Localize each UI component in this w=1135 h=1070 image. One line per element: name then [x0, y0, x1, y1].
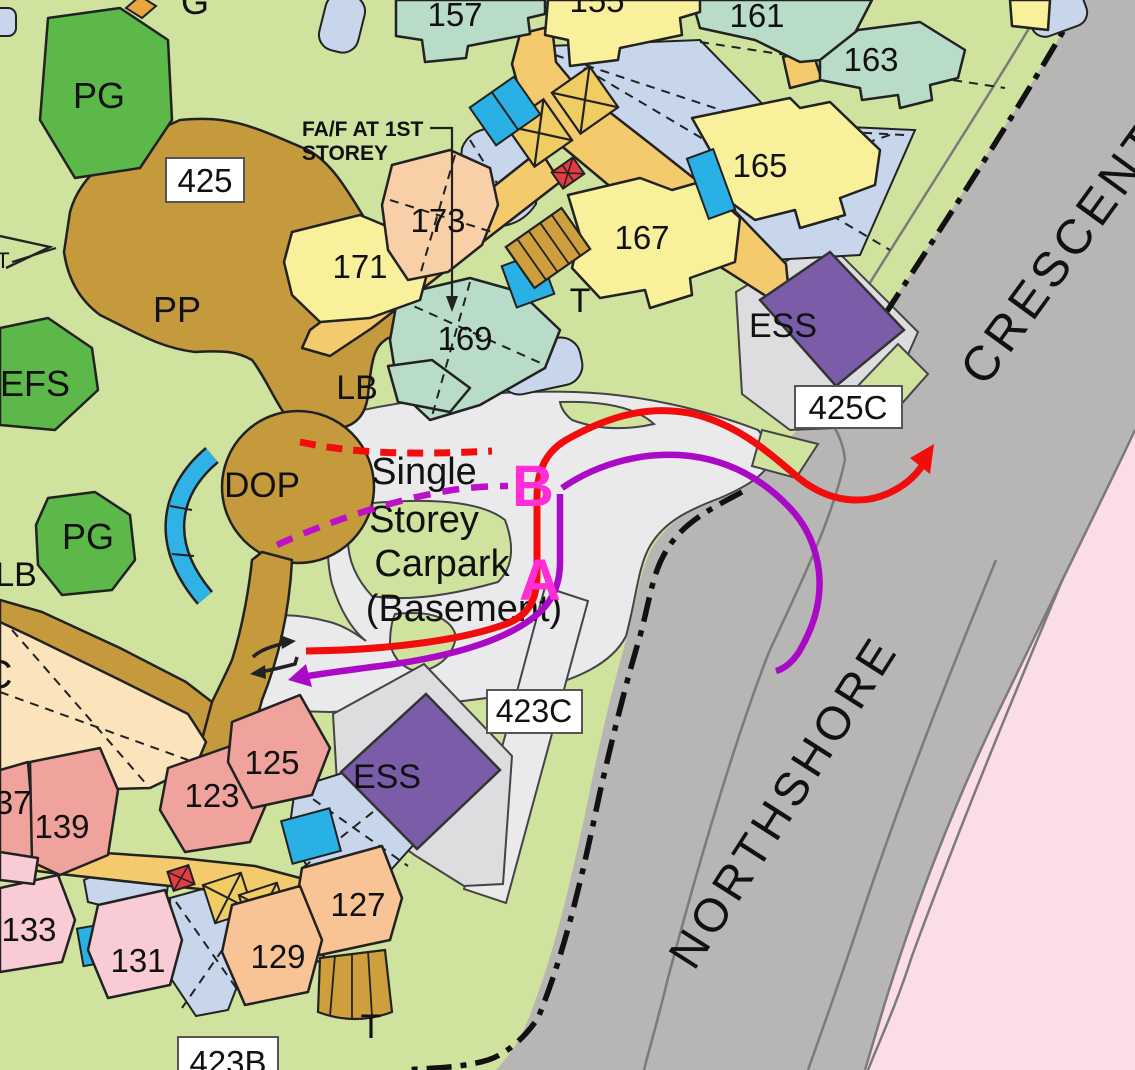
g-top-label: G — [181, 0, 209, 22]
marker-a: A — [519, 548, 561, 613]
pg-top-label: PG — [73, 75, 125, 116]
carpark-text-2: Storey — [369, 499, 479, 541]
carpark-text-1: Single — [371, 451, 477, 493]
annotation-line2: STOREY — [302, 142, 388, 165]
lb-left-label: LB — [0, 556, 37, 594]
block-169-label: 169 — [437, 320, 492, 357]
ess-bottom-label: ESS — [353, 758, 421, 796]
t-left-label: T — [0, 248, 10, 273]
efs-label: EFS — [0, 363, 70, 404]
carpark-text-3: Carpark — [374, 543, 510, 585]
t-bottom-label: T — [361, 1008, 382, 1046]
block-173-label: 173 — [410, 202, 465, 239]
marker-b: B — [512, 454, 554, 519]
block-125-label: 125 — [244, 744, 299, 781]
block-167-label: 167 — [614, 219, 669, 256]
block-155-label: 155 — [569, 0, 624, 19]
block-pink-small — [0, 852, 38, 884]
voiddeck-left-edge — [0, 8, 16, 36]
dop-label: DOP — [224, 466, 300, 505]
block-131-label: 131 — [110, 942, 165, 979]
block-137-label: 137 — [0, 784, 32, 821]
site-map: PG G EFS PP DOP PG LB LB ESS ESS T T T C… — [0, 0, 1135, 1070]
pp-label: PP — [153, 289, 201, 330]
block-129-label: 129 — [250, 938, 305, 975]
label-423c: 423C — [496, 693, 573, 729]
annotation-line1: FA/F AT 1ST — [302, 118, 424, 141]
block-133-label: 133 — [1, 911, 56, 948]
block-163-label: 163 — [843, 41, 898, 78]
pg-mid-label: PG — [62, 516, 114, 557]
block-123-label: 123 — [184, 777, 239, 814]
c-left-label: C — [0, 653, 12, 697]
block-139-label: 139 — [34, 808, 89, 845]
block-topright-yellow — [1010, 0, 1050, 30]
lb-top-label: LB — [336, 369, 378, 407]
label-423b: 423B — [189, 1044, 266, 1070]
block-161-label: 161 — [729, 0, 784, 34]
t-top-label: T — [570, 282, 591, 320]
ess-top-label: ESS — [749, 307, 817, 345]
block-165-label: 165 — [732, 147, 787, 184]
block-171-label: 171 — [332, 248, 387, 285]
label-425c: 425C — [809, 389, 888, 426]
site-map-screenshot: PG G EFS PP DOP PG LB LB ESS ESS T T T C… — [0, 0, 1135, 1070]
block-157-label: 157 — [427, 0, 482, 33]
block-127-label: 127 — [330, 886, 385, 923]
label-425: 425 — [177, 162, 232, 199]
